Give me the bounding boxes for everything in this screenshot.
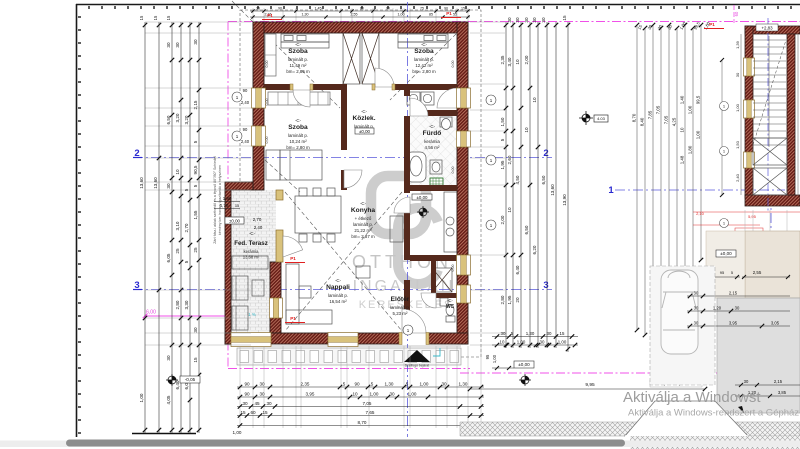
svg-text:30: 30 [540,340,545,345]
svg-text:1,80: 1,80 [688,145,693,154]
svg-text:2,70: 2,70 [184,223,189,232]
svg-text:1,30: 1,30 [459,382,468,387]
svg-text:0,00: 0,00 [265,61,269,68]
svg-text:30: 30 [547,331,552,336]
svg-text:60: 60 [250,410,256,415]
svg-text:15: 15 [193,357,198,363]
svg-text:13,68 m²: 13,68 m² [243,255,260,260]
svg-text:13,90: 13,90 [562,194,567,206]
svg-text:5,23 m²: 5,23 m² [393,311,408,316]
svg-text:bm= 2,87 m: bm= 2,87 m [351,234,375,239]
svg-text:Aktiválja a Windowst: Aktiválja a Windowst [623,389,761,406]
svg-text:1,48: 1,48 [680,155,685,164]
svg-text:10: 10 [524,127,529,133]
svg-text:2,60: 2,60 [507,155,512,164]
svg-text:1,39: 1,39 [735,40,740,49]
svg-text:1,30: 1,30 [302,13,309,17]
svg-text:1,00: 1,00 [139,393,144,402]
svg-text:1,40: 1,40 [680,95,685,104]
svg-text:5: 5 [343,382,346,387]
svg-text:3,20: 3,20 [175,113,180,122]
svg-text:1,00: 1,00 [492,354,497,363]
svg-text:15: 15 [240,410,246,415]
svg-text:1,00: 1,00 [696,130,701,139]
svg-text:-C-: -C- [361,109,368,114]
svg-text:2,70: 2,70 [253,217,262,222]
svg-text:11,49 m²: 11,49 m² [289,63,307,68]
svg-text:laminált p.: laminált p. [328,293,348,298]
svg-text:1,00: 1,00 [233,430,242,435]
svg-text:4.03: 4.03 [597,116,606,121]
svg-text:Szoba: Szoba [288,48,308,55]
svg-text:2: 2 [543,148,548,159]
svg-text:6,20: 6,20 [532,245,537,254]
svg-text:4,56 m²: 4,56 m² [425,145,440,150]
svg-text:90: 90 [244,382,250,387]
svg-text:bm= 2,80 m: bm= 2,80 m [412,69,436,74]
svg-text:-C-: -C- [429,124,436,129]
svg-text:+ étkező: + étkező [355,216,372,221]
svg-text:1,00: 1,00 [517,340,526,345]
svg-text:95: 95 [720,270,725,275]
svg-text:2,40: 2,40 [254,225,263,230]
svg-text:-0,05: -0,05 [185,377,196,382]
svg-text:8,70: 8,70 [632,113,637,122]
svg-text:Szoba: Szoba [288,124,308,131]
svg-text:60: 60 [360,7,364,11]
svg-text:P1: P1 [290,256,296,261]
svg-text:0,00: 0,00 [265,137,269,144]
svg-text:90: 90 [243,88,248,93]
svg-text:30: 30 [242,401,248,406]
svg-text:2,40: 2,40 [735,173,740,182]
svg-text:1,45: 1,45 [315,7,322,11]
svg-text:2,40: 2,40 [241,100,250,105]
svg-text:Konyha: Konyha [351,207,376,214]
svg-text:10: 10 [680,127,685,132]
svg-text:85: 85 [429,13,433,17]
svg-text:kerámia: kerámia [424,139,440,144]
svg-text:10: 10 [175,169,180,175]
svg-text:16,54 m²: 16,54 m² [329,299,347,304]
svg-text:5,95: 5,95 [748,214,757,219]
svg-text:10,24 m²: 10,24 m² [289,139,307,144]
svg-text:30: 30 [694,306,699,311]
svg-text:90: 90 [386,7,390,11]
svg-text:5: 5 [500,138,505,141]
svg-text:±0,00: ±0,00 [359,129,371,134]
svg-text:3: 3 [543,280,548,291]
svg-text:P1: P1 [267,13,273,18]
svg-text:0,00: 0,00 [451,167,455,174]
svg-text:bm= 2,86 m: bm= 2,86 m [286,69,310,74]
svg-text:laminált p.: laminált p. [390,305,410,310]
svg-text:1,55: 1,55 [193,210,198,219]
svg-text:3,05: 3,05 [771,321,780,326]
svg-text:7,65: 7,65 [366,410,375,415]
svg-text:8,40: 8,40 [640,117,645,126]
svg-text:10: 10 [532,97,537,103]
svg-text:5: 5 [406,382,409,387]
svg-text:kerámia: kerámia [244,249,260,254]
svg-text:P1: P1 [446,11,452,16]
svg-text:4,25: 4,25 [672,117,677,126]
svg-text:30: 30 [166,183,171,189]
svg-text:1,00: 1,00 [735,103,740,112]
svg-text:2,55: 2,55 [351,13,358,17]
svg-text:30: 30 [266,401,272,406]
svg-text:1,90: 1,90 [223,196,232,201]
svg-text:+2,83: +2,83 [761,25,773,30]
svg-text:P1: P1 [290,316,296,321]
svg-text:2,80: 2,80 [175,300,180,309]
svg-text:0,00: 0,00 [451,61,455,68]
svg-text:1,70: 1,70 [220,203,229,208]
svg-text:30: 30 [735,72,740,77]
svg-text:Szélfogó bejárat: Szélfogó bejárat [405,364,430,368]
svg-text:3,95: 3,95 [729,321,738,326]
svg-text:6,40: 6,40 [515,265,520,274]
svg-text:12,42 m²: 12,42 m² [415,63,433,68]
svg-text:laminált p.: laminált p. [353,222,373,227]
svg-text:15: 15 [262,410,268,415]
svg-text:60: 60 [734,11,739,16]
svg-text:2,00: 2,00 [524,55,529,64]
svg-text:15: 15 [235,204,239,208]
svg-text:30: 30 [694,291,699,296]
svg-text:6,50: 6,50 [541,175,546,184]
svg-text:1: 1 [608,185,614,196]
svg-text:2,55: 2,55 [753,270,762,275]
svg-text:Közlek.: Közlek. [352,115,375,122]
svg-text:4,05: 4,05 [166,395,171,404]
svg-text:1,00: 1,00 [370,392,379,397]
svg-text:10: 10 [500,340,505,345]
svg-text:30: 30 [501,331,506,336]
svg-text:0,00: 0,00 [451,265,455,272]
svg-text:-C-: -C- [421,42,428,47]
svg-text:2,80: 2,80 [500,295,505,304]
svg-text:30: 30 [541,17,546,23]
svg-text:55: 55 [453,13,457,17]
svg-text:3,40: 3,40 [507,57,512,66]
svg-text:WC: WC [446,304,455,310]
svg-text:95: 95 [485,354,490,359]
svg-text:3,95: 3,95 [306,392,315,397]
svg-text:8,70: 8,70 [358,420,367,425]
svg-text:2,35: 2,35 [301,382,310,387]
svg-text:1,00: 1,00 [558,340,567,345]
svg-text:6,50: 6,50 [524,225,529,234]
svg-text:30: 30 [193,327,198,333]
svg-text:Nappali: Nappali [326,284,350,291]
svg-text:10: 10 [507,207,512,213]
svg-text:1,00: 1,00 [420,382,429,387]
svg-text:1,00: 1,00 [688,105,693,114]
svg-text:4,50: 4,50 [515,175,520,184]
svg-text:30: 30 [389,392,395,397]
svg-text:30: 30 [193,39,198,45]
svg-text:5: 5 [193,140,198,143]
svg-text:6,50: 6,50 [166,115,171,124]
svg-text:2,15: 2,15 [193,100,198,109]
svg-text:Zárt fdsz-i ablak szélvédő és: Zárt fdsz-i ablak szélvédő és a lépcső 8… [213,156,217,244]
svg-text:±0,00: ±0,00 [229,218,241,223]
svg-text:bm= 2,80 m: bm= 2,80 m [286,145,310,150]
svg-text:30: 30 [259,392,265,397]
svg-text:Aktiválja a Windows-rendszert: Aktiválja a Windows-rendszert a Gépház [628,408,799,419]
svg-text:P1: P1 [709,22,715,27]
svg-text:kémény ker. horony igazítandó: kémény ker. horony igazítandó a helyszín… [218,165,222,235]
svg-text:15: 15 [166,15,171,20]
svg-text:30: 30 [744,379,749,384]
svg-text:laminált p.: laminált p. [288,57,308,62]
svg-text:30: 30 [507,17,512,23]
svg-text:Előtér: Előtér [391,296,410,303]
svg-text:2,40: 2,40 [241,139,250,144]
svg-text:15: 15 [153,15,158,20]
svg-text:9,95: 9,95 [585,382,595,388]
svg-text:-C-: -C- [335,278,342,283]
svg-text:-C-: -C- [249,231,256,236]
svg-text:laminált p.: laminált p. [288,133,308,138]
svg-text:21,22 m²: 21,22 m² [354,228,372,233]
svg-text:1 %: 1 % [248,312,256,317]
svg-text:30: 30 [515,17,520,23]
svg-text:30: 30 [259,382,265,387]
svg-text:25: 25 [175,248,180,254]
svg-text:1,00: 1,00 [398,13,405,17]
svg-text:7,05: 7,05 [664,115,669,124]
svg-text:30: 30 [441,382,447,387]
svg-text:6,05: 6,05 [166,253,171,262]
svg-text:30: 30 [735,306,740,311]
svg-text:5: 5 [193,184,198,187]
svg-text:75: 75 [420,7,424,11]
svg-text:-C-: -C- [295,42,302,47]
svg-text:13,60: 13,60 [153,177,158,189]
svg-text:1,20: 1,20 [713,306,722,311]
svg-text:90: 90 [354,382,360,387]
svg-text:5: 5 [184,260,189,263]
svg-text:3,20: 3,20 [184,115,189,124]
svg-text:1,30: 1,30 [385,382,394,387]
svg-text:15: 15 [562,15,567,21]
svg-text:13,60: 13,60 [550,184,555,196]
svg-text:25: 25 [193,247,198,253]
svg-text:90,5: 90,5 [193,165,198,174]
svg-text:-C-: -C- [360,201,367,206]
svg-text:99,5: 99,5 [696,95,701,104]
svg-text:30: 30 [175,42,180,48]
svg-text:3,85: 3,85 [778,390,787,395]
svg-text:10: 10 [352,392,358,397]
svg-text:30: 30 [166,42,171,48]
svg-text:Szoba: Szoba [414,48,434,55]
svg-text:1,00: 1,00 [408,392,417,397]
svg-text:15: 15 [256,7,260,11]
svg-text:7,05: 7,05 [363,401,372,406]
svg-text:Fürdő: Fürdő [423,130,442,137]
svg-text:1,30: 1,30 [526,331,535,336]
svg-text:90: 90 [278,7,282,11]
svg-text:1,95: 1,95 [500,160,505,169]
svg-text:10: 10 [515,59,520,65]
svg-text:Fed. Terasz: Fed. Terasz [234,240,268,247]
svg-text:20: 20 [515,297,520,303]
svg-text:30: 30 [524,17,529,23]
svg-text:3,30: 3,30 [184,300,189,309]
svg-text:±0,00: ±0,00 [518,362,530,367]
svg-text:13,60: 13,60 [139,177,144,189]
svg-text:-C-: -C- [295,118,302,123]
svg-text:15: 15 [560,331,565,336]
svg-text:45: 45 [254,401,260,406]
svg-text:90: 90 [243,127,248,132]
svg-text:2,15: 2,15 [774,379,783,384]
svg-text:5: 5 [371,382,374,387]
svg-text:7,85: 7,85 [648,110,653,119]
svg-text:2,00: 2,00 [500,215,505,224]
svg-text:±0,00: ±0,00 [720,251,732,256]
svg-text:2,35: 2,35 [500,55,505,64]
svg-text:90: 90 [444,7,448,11]
svg-text:5: 5 [184,188,189,191]
svg-text:90: 90 [244,392,250,397]
svg-text:30: 30 [694,321,699,326]
svg-text:30: 30 [166,355,171,361]
svg-text:±0,00: ±0,00 [417,195,429,200]
svg-text:15: 15 [139,15,144,20]
svg-text:6,00: 6,00 [146,310,156,316]
svg-text:7,05: 7,05 [656,105,661,114]
svg-text:1,50: 1,50 [500,117,505,126]
svg-text:15: 15 [461,7,465,11]
svg-text:30: 30 [532,17,537,23]
svg-text:1,50: 1,50 [735,140,740,149]
svg-text:-C-: -C- [447,298,453,303]
svg-text:3,10: 3,10 [175,221,180,230]
svg-text:laminált p.: laminált p. [414,57,434,62]
svg-text:1,95: 1,95 [507,295,512,304]
svg-text:2,15: 2,15 [729,291,738,296]
svg-text:0,00: 0,00 [265,99,269,106]
